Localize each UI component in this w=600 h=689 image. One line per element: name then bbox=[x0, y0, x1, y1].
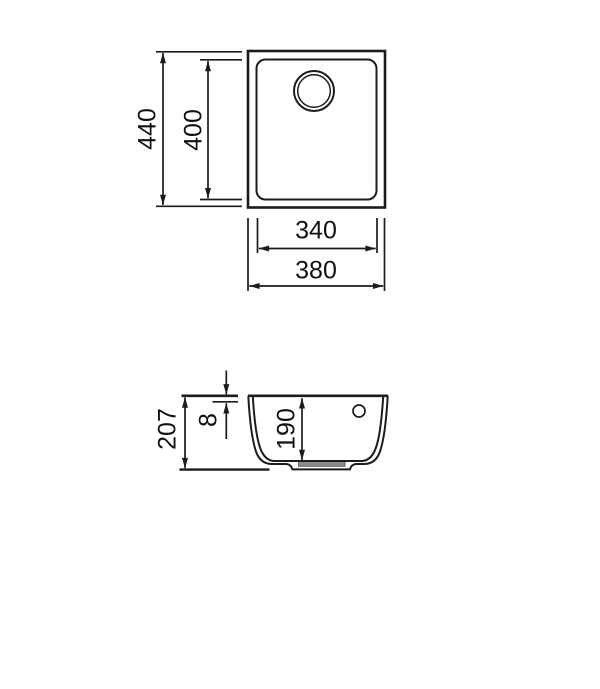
dim-label-overall-height: 440 bbox=[136, 108, 161, 150]
bowl-section-outer-contour bbox=[248, 397, 387, 470]
section-view bbox=[248, 396, 388, 470]
dim-label-overall-width: 380 bbox=[295, 259, 337, 284]
dimension-8-lines bbox=[213, 371, 239, 440]
top-view bbox=[248, 51, 385, 208]
dim-label-bowl-depth: 190 bbox=[275, 408, 300, 450]
overflow-hole bbox=[353, 405, 365, 417]
dim-label-bowl-height: 400 bbox=[182, 109, 207, 151]
dim-label-rim-height: 8 bbox=[197, 413, 222, 427]
sink-technical-drawing: 440 400 340 380 207 8 190 bbox=[0, 0, 600, 689]
dim-label-total-depth: 207 bbox=[156, 408, 181, 450]
drain-strainer bbox=[299, 462, 346, 467]
drawing-linework bbox=[0, 0, 600, 689]
dim-label-bowl-width: 340 bbox=[295, 219, 337, 244]
